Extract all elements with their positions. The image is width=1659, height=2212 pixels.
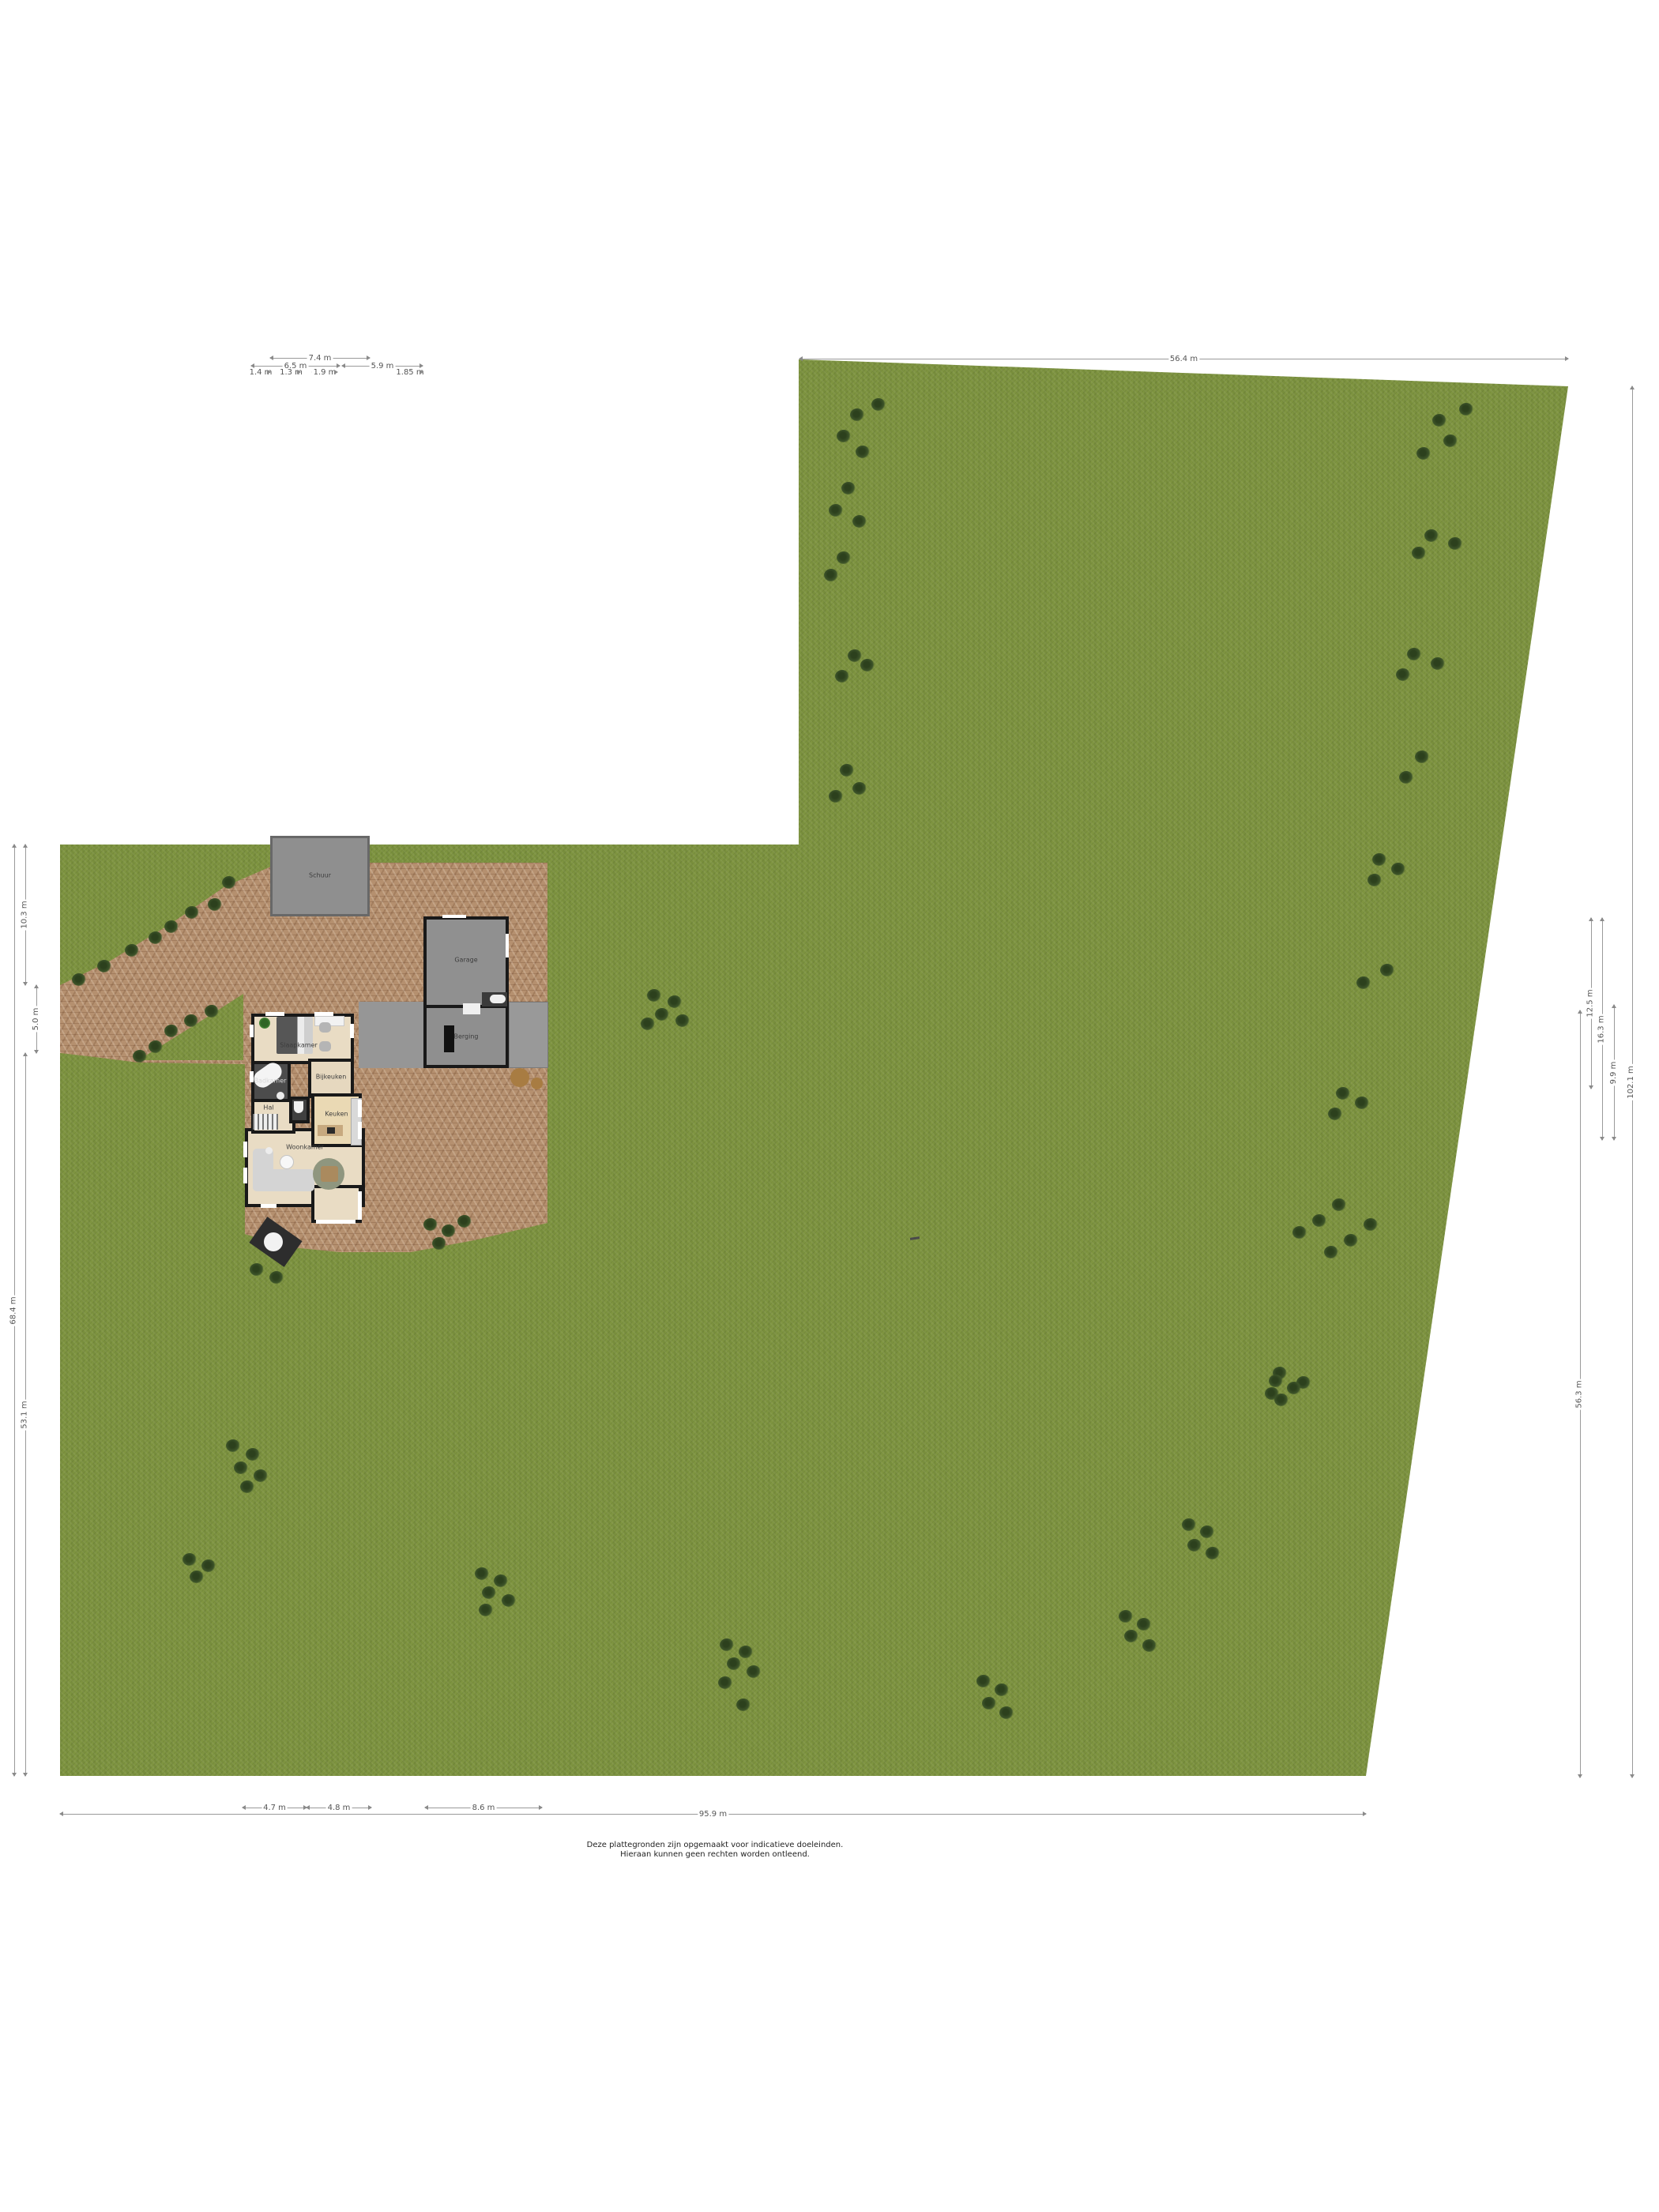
tree-icon bbox=[747, 1665, 761, 1678]
tree-icon bbox=[125, 944, 139, 957]
sink bbox=[276, 1092, 284, 1100]
coffee-table bbox=[280, 1155, 294, 1169]
dimension-line: 53.1 m bbox=[25, 1053, 26, 1776]
room-serre bbox=[311, 1185, 362, 1223]
tree-icon bbox=[982, 1697, 996, 1710]
tree-icon bbox=[736, 1698, 750, 1711]
tree-icon bbox=[1367, 874, 1382, 886]
tree-icon bbox=[1415, 750, 1429, 763]
dimension-line: 1.4 m bbox=[251, 372, 270, 373]
window bbox=[243, 1142, 247, 1157]
tree-icon bbox=[1380, 964, 1394, 976]
window bbox=[265, 1012, 284, 1016]
tree-icon bbox=[1356, 976, 1371, 989]
window bbox=[350, 1024, 354, 1038]
window bbox=[316, 1220, 355, 1224]
tree-icon bbox=[641, 1018, 655, 1030]
dimension-label: 1.3 m bbox=[278, 368, 304, 377]
dimension-label: 9.9 m bbox=[1609, 1059, 1618, 1085]
dimension-line: 12.5 m bbox=[1591, 918, 1592, 1089]
tree-icon bbox=[185, 906, 199, 919]
window bbox=[243, 1168, 247, 1183]
tree-icon bbox=[190, 1571, 204, 1583]
tree-icon bbox=[848, 649, 862, 662]
tree-icon bbox=[1391, 863, 1405, 875]
dimension-label: 68.4 m bbox=[9, 1295, 18, 1326]
tree-icon bbox=[240, 1480, 254, 1493]
tree-icon bbox=[1355, 1097, 1369, 1109]
tree-icon bbox=[254, 1469, 268, 1482]
window bbox=[250, 1025, 254, 1037]
tree-icon bbox=[149, 1040, 163, 1053]
tree-icon bbox=[1124, 1630, 1138, 1642]
tree-icon bbox=[1324, 1246, 1338, 1258]
tree-icon bbox=[852, 782, 867, 795]
tree-icon bbox=[1119, 1610, 1133, 1623]
disclaimer-line1: Deze plattegronden zijn opgemaakt voor i… bbox=[553, 1841, 877, 1850]
dimension-label: 53.1 m bbox=[21, 1399, 29, 1430]
tree-icon bbox=[999, 1706, 1014, 1719]
stove bbox=[444, 1025, 454, 1052]
window bbox=[261, 1204, 276, 1208]
dimension-line: 7.4 m bbox=[270, 358, 370, 359]
tree-icon bbox=[1332, 1198, 1346, 1211]
dimension-line: 68.4 m bbox=[14, 845, 15, 1776]
floor-lamp bbox=[265, 1147, 273, 1154]
dimension-label: 16.3 m bbox=[1597, 1014, 1606, 1044]
toilet bbox=[294, 1101, 303, 1113]
disclaimer-text: Deze plattegronden zijn opgemaakt voor i… bbox=[553, 1841, 877, 1860]
tree-icon bbox=[182, 1553, 197, 1566]
dimension-label: 7.4 m bbox=[307, 354, 333, 363]
tree-icon bbox=[1372, 853, 1386, 866]
dimension-line: 5.0 m bbox=[36, 985, 37, 1053]
tree-icon bbox=[502, 1594, 516, 1607]
disclaimer-line2: Hieraan kunnen geen rechten worden ontle… bbox=[553, 1850, 877, 1860]
hal-label: Hal bbox=[263, 1104, 273, 1112]
berging-label: Berging bbox=[453, 1033, 478, 1040]
tree-icon bbox=[1142, 1639, 1157, 1652]
tree-icon bbox=[479, 1604, 493, 1616]
badkamer-label: Badkamer bbox=[254, 1078, 287, 1085]
tree-icon bbox=[718, 1676, 732, 1689]
dimension-line: 16.3 m bbox=[1602, 918, 1603, 1140]
tree-icon bbox=[824, 569, 838, 581]
window bbox=[358, 1122, 362, 1139]
tree-icon bbox=[655, 1008, 669, 1021]
tree-icon bbox=[1292, 1226, 1307, 1239]
tree-icon bbox=[720, 1638, 734, 1651]
window bbox=[358, 1100, 362, 1117]
tree-icon bbox=[1137, 1618, 1151, 1631]
dimension-line: 1.85 m bbox=[397, 372, 423, 373]
tree-icon bbox=[423, 1218, 438, 1231]
dimension-label: 56.3 m bbox=[1575, 1379, 1584, 1409]
tree-icon bbox=[457, 1215, 472, 1228]
dimension-label: 10.3 m bbox=[21, 899, 29, 930]
tree-icon bbox=[1399, 771, 1413, 784]
tree-icon bbox=[222, 876, 236, 889]
cooktop bbox=[327, 1127, 335, 1134]
site-plan-canvas: Schuur Garage Berging Slaapkamer Badkame… bbox=[0, 0, 1659, 2212]
tree-icon bbox=[850, 408, 864, 421]
tree-icon bbox=[1443, 434, 1458, 447]
dimension-line: 5.9 m bbox=[342, 366, 423, 367]
tree-icon bbox=[852, 515, 867, 528]
tree-icon bbox=[205, 1005, 219, 1018]
tree-icon bbox=[739, 1646, 753, 1658]
shed-label: Schuur bbox=[309, 872, 331, 879]
window bbox=[250, 1071, 254, 1082]
tree-icon bbox=[1187, 1539, 1202, 1552]
dimension-label: 5.0 m bbox=[32, 1006, 40, 1033]
dimension-label: 4.8 m bbox=[326, 1804, 352, 1812]
tree-icon bbox=[727, 1657, 741, 1670]
tree-icon bbox=[250, 1263, 264, 1276]
tree-icon bbox=[675, 1014, 690, 1027]
dimension-line: 95.9 m bbox=[60, 1814, 1366, 1815]
tree-icon bbox=[482, 1586, 496, 1599]
dimension-line: 9.9 m bbox=[1614, 1005, 1615, 1140]
dimension-label: 95.9 m bbox=[698, 1810, 728, 1819]
tree-icon bbox=[837, 551, 851, 564]
tree-icon bbox=[829, 504, 843, 517]
garden-table-small bbox=[531, 1078, 543, 1089]
dimension-label: 56.4 m bbox=[1168, 355, 1199, 363]
dining-table bbox=[321, 1166, 338, 1182]
tree-icon bbox=[201, 1559, 216, 1572]
tree-icon bbox=[840, 764, 854, 777]
garage-window bbox=[506, 934, 509, 957]
tree-icon bbox=[860, 659, 875, 671]
tree-icon bbox=[164, 1025, 179, 1037]
tree-icon bbox=[1344, 1234, 1358, 1247]
paved-court bbox=[359, 1002, 425, 1068]
dimension-line: 10.3 m bbox=[25, 845, 26, 985]
tree-icon bbox=[1364, 1218, 1378, 1231]
garage-window bbox=[442, 915, 466, 918]
tree-icon bbox=[841, 482, 856, 495]
tree-icon bbox=[1182, 1518, 1196, 1531]
slaapkamer-label: Slaapkamer bbox=[280, 1042, 318, 1049]
tree-icon bbox=[1336, 1087, 1350, 1100]
keuken-label: Keuken bbox=[325, 1111, 348, 1118]
tree-icon bbox=[1416, 447, 1431, 460]
tree-icon bbox=[72, 973, 86, 986]
dimension-line: 102.1 m bbox=[1632, 386, 1633, 1777]
dimension-label: 8.6 m bbox=[471, 1804, 497, 1812]
bijkeuken-label: Bijkeuken bbox=[316, 1074, 347, 1081]
tree-icon bbox=[1287, 1382, 1301, 1394]
hot-tub bbox=[264, 1232, 283, 1251]
tree-icon bbox=[1459, 403, 1473, 416]
window bbox=[358, 1191, 362, 1220]
window bbox=[314, 1012, 333, 1016]
tree-icon bbox=[149, 931, 163, 944]
armchair bbox=[319, 1022, 331, 1033]
armchair bbox=[319, 1041, 331, 1051]
dimension-line: 56.4 m bbox=[799, 359, 1568, 359]
dimension-label: 5.9 m bbox=[370, 362, 396, 371]
tree-icon bbox=[246, 1448, 260, 1461]
dimension-line: 4.7 m bbox=[243, 1808, 307, 1808]
tree-icon bbox=[1269, 1375, 1283, 1387]
dimension-line: 1.9 m bbox=[312, 372, 337, 373]
dimension-label: 1.85 m bbox=[394, 368, 425, 377]
tree-icon bbox=[269, 1271, 284, 1284]
tree-icon bbox=[226, 1439, 240, 1452]
tree-icon bbox=[234, 1461, 248, 1474]
berging-door bbox=[463, 1003, 480, 1014]
tree-icon bbox=[976, 1675, 991, 1687]
dimension-line: 56.3 m bbox=[1580, 1010, 1581, 1777]
tree-icon bbox=[184, 1014, 198, 1027]
tree-icon bbox=[668, 995, 682, 1008]
woonkamer-label: Woonkamer bbox=[286, 1144, 324, 1151]
dimension-label: 102.1 m bbox=[1627, 1064, 1635, 1100]
dimension-line: 1.3 m bbox=[282, 372, 300, 373]
tree-icon bbox=[164, 920, 179, 933]
tree-icon bbox=[647, 989, 661, 1002]
tree-icon bbox=[871, 398, 886, 411]
tree-icon bbox=[1431, 657, 1445, 670]
tree-icon bbox=[1200, 1525, 1214, 1538]
stairs bbox=[253, 1114, 278, 1130]
sofa bbox=[253, 1169, 314, 1191]
tree-icon bbox=[1432, 414, 1446, 427]
tree-icon bbox=[208, 898, 222, 911]
tree-icon bbox=[133, 1050, 147, 1063]
tree-icon bbox=[995, 1683, 1009, 1696]
dimension-label: 1.9 m bbox=[312, 368, 338, 377]
patio bbox=[509, 1002, 548, 1068]
dimension-line: 4.8 m bbox=[307, 1808, 371, 1808]
garage-label: Garage bbox=[454, 957, 477, 964]
tree-icon bbox=[494, 1574, 508, 1587]
tree-icon bbox=[475, 1567, 489, 1580]
tree-icon bbox=[829, 790, 843, 803]
dimension-line: 6.5 m bbox=[251, 366, 340, 367]
tree-icon bbox=[837, 430, 851, 442]
tree-icon bbox=[856, 446, 870, 458]
tree-icon bbox=[1407, 648, 1421, 660]
tree-icon bbox=[1396, 668, 1410, 681]
tree-icon bbox=[442, 1224, 456, 1237]
tree-icon bbox=[432, 1237, 446, 1250]
tree-icon bbox=[1328, 1108, 1342, 1120]
bathtub-small bbox=[490, 995, 506, 1003]
tree-icon bbox=[1412, 547, 1426, 559]
plant bbox=[259, 1018, 270, 1029]
dimension-label: 12.5 m bbox=[1586, 987, 1595, 1018]
tree-icon bbox=[97, 960, 111, 972]
tree-icon bbox=[1206, 1547, 1220, 1559]
dimension-label: 4.7 m bbox=[261, 1804, 288, 1812]
tree-icon bbox=[1312, 1214, 1326, 1227]
tree-icon bbox=[1424, 529, 1439, 542]
tree-icon bbox=[835, 670, 849, 683]
tree-icon bbox=[1274, 1394, 1288, 1406]
garden-table bbox=[510, 1068, 529, 1087]
tree-icon bbox=[1448, 537, 1462, 550]
dimension-line: 8.6 m bbox=[425, 1808, 542, 1808]
dimension-label: 1.4 m bbox=[248, 368, 274, 377]
